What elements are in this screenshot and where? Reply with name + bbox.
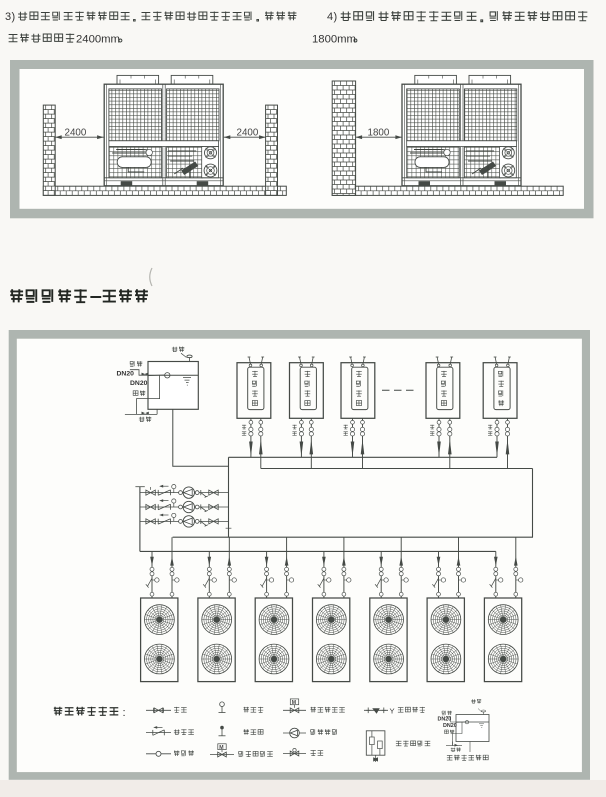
svg-text::: : <box>123 707 126 719</box>
svg-text:): ) <box>334 11 338 23</box>
svg-text:DN20: DN20 <box>443 723 457 729</box>
svg-text:3: 3 <box>5 11 11 23</box>
svg-text:2400: 2400 <box>237 128 259 139</box>
svg-text:1800mm: 1800mm <box>312 34 356 46</box>
svg-text:4: 4 <box>327 11 333 23</box>
svg-text:Y: Y <box>390 706 395 715</box>
svg-text:M: M <box>292 700 296 706</box>
svg-text:2400: 2400 <box>65 128 87 139</box>
svg-text:DN20: DN20 <box>438 717 452 723</box>
svg-text:): ) <box>12 11 16 23</box>
svg-text:M: M <box>219 745 223 751</box>
svg-text:2400mm: 2400mm <box>76 34 120 46</box>
svg-text:1800: 1800 <box>368 128 390 139</box>
svg-text:DN20: DN20 <box>130 380 148 387</box>
svg-text:DN20: DN20 <box>117 370 135 377</box>
